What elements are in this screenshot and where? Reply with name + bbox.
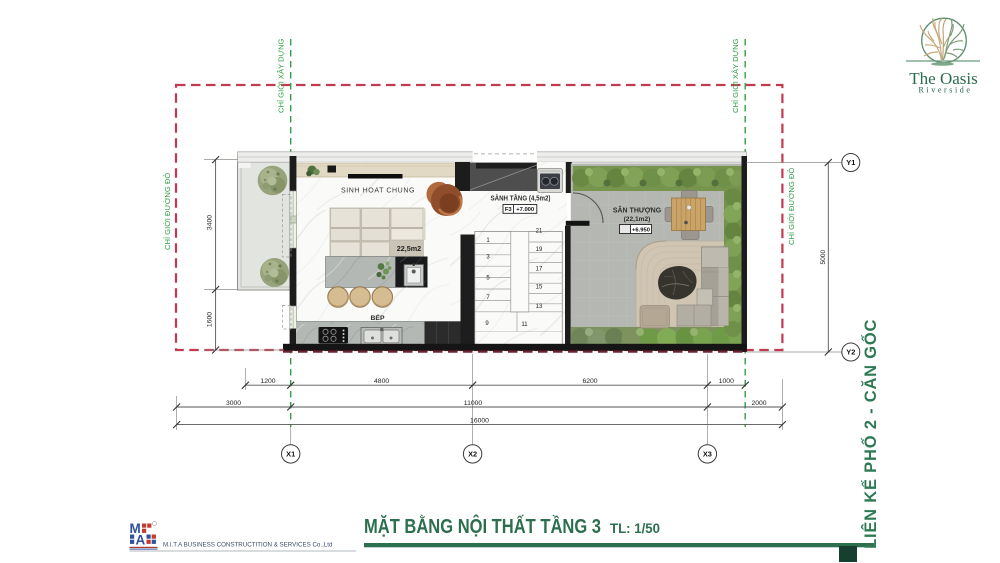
svg-text:SINH HOAT CHUNG: SINH HOAT CHUNG <box>341 188 415 195</box>
svg-text:A: A <box>136 533 146 548</box>
svg-text:21: 21 <box>536 229 543 235</box>
svg-text:11000: 11000 <box>464 400 483 407</box>
svg-text:3000: 3000 <box>226 400 241 407</box>
svg-text:F3: F3 <box>505 207 513 213</box>
svg-text:X2: X2 <box>468 450 477 459</box>
svg-text:CHỈ GIỚI XÂY DỰNG: CHỈ GIỚI XÂY DỰNG <box>277 38 286 113</box>
svg-text:CHỈ GIỚI ĐƯỜNG ĐỎ: CHỈ GIỚI ĐƯỜNG ĐỎ <box>787 168 796 245</box>
svg-text:LIÊN KẾ PHỐ 2 - CĂN GỐC: LIÊN KẾ PHỐ 2 - CĂN GỐC <box>860 319 880 549</box>
svg-text:16000: 16000 <box>470 417 489 424</box>
svg-text:1200: 1200 <box>260 378 275 385</box>
svg-text:+6.950: +6.950 <box>632 227 650 233</box>
svg-text:M.I.T.A BUSINESS CONSTRUCTITIO: M.I.T.A BUSINESS CONSTRUCTITION & SERVIC… <box>163 542 333 549</box>
svg-text:6200: 6200 <box>582 378 597 385</box>
svg-text:13: 13 <box>536 304 543 310</box>
svg-text:17: 17 <box>536 267 543 273</box>
svg-text:1600: 1600 <box>207 312 214 327</box>
svg-text:+7.000: +7.000 <box>516 207 534 213</box>
svg-text:2000: 2000 <box>751 400 766 407</box>
svg-text:MẶT BẰNG NỘI THẤT TẦNG 3: MẶT BẰNG NỘI THẤT TẦNG 3 <box>364 514 601 538</box>
svg-text:11: 11 <box>521 322 528 328</box>
svg-text:15: 15 <box>536 285 543 291</box>
svg-text:Riverside: Riverside <box>918 86 972 95</box>
svg-text:3400: 3400 <box>207 215 214 230</box>
svg-text:4800: 4800 <box>374 378 389 385</box>
svg-text:Y2: Y2 <box>846 348 855 357</box>
svg-text:19: 19 <box>536 247 543 253</box>
svg-text:TL: 1/50: TL: 1/50 <box>610 521 660 536</box>
svg-text:CHỈ GIỚI XÂY DỰNG: CHỈ GIỚI XÂY DỰNG <box>731 38 740 113</box>
svg-text:5000: 5000 <box>820 250 827 265</box>
svg-text:1000: 1000 <box>719 378 734 385</box>
svg-text:Y1: Y1 <box>846 158 855 167</box>
svg-text:CHỈ GIỚI ĐƯỜNG ĐỎ: CHỈ GIỚI ĐƯỜNG ĐỎ <box>163 173 172 250</box>
svg-text:22,5m2: 22,5m2 <box>397 244 421 253</box>
svg-text:(22,1m2): (22,1m2) <box>624 216 651 223</box>
svg-text:X1: X1 <box>286 450 295 459</box>
svg-text:X3: X3 <box>703 450 712 459</box>
svg-text:SÂN THƯỢNG: SÂN THƯỢNG <box>613 206 662 215</box>
